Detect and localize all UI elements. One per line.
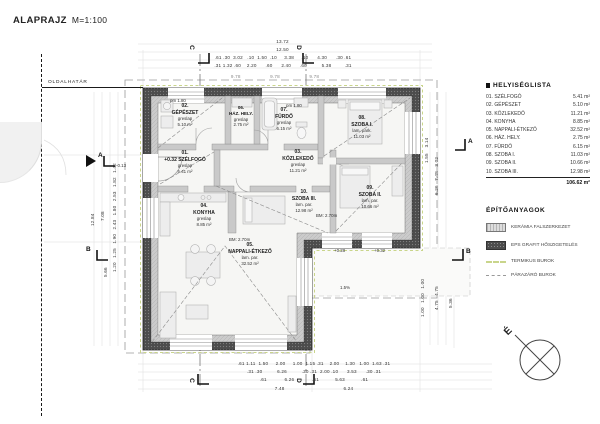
legend-item-vapor: PÁRAZÁRÓ BUROK (486, 273, 578, 278)
room-list-name: 08. SZOBA I. (486, 151, 515, 159)
room-level: +0.32 (164, 157, 177, 163)
room-list-name: 07. FÜRDŐ (486, 143, 512, 151)
room-list-area: 5.10 m² (573, 101, 590, 109)
boundary-label: OLDALHATÁR (48, 80, 88, 85)
room-label-szoba1: 08. SZOBA I. lam. park. 11.03 m² (330, 115, 394, 139)
room-list-area: 2.75 m² (573, 134, 590, 142)
dim-right-col1: 1.55 3.14 (424, 94, 429, 206)
room-list-row: 07. FÜRDŐ 6.15 m² (486, 143, 590, 151)
room-area: 32.52 m² (208, 261, 292, 267)
room-list-area: 5.41 m² (573, 93, 590, 101)
dim-right-col4: 4.75 4.75 (434, 250, 439, 346)
legend-label: TERMIKUS BUROK (511, 259, 554, 264)
dim-right-col2: 6.26 7.48 3.02 (434, 100, 439, 252)
level-mark: -0.13 (116, 163, 126, 168)
dim-top-chain2: .31 1.32 .60 2.20 .60 2.40 .60 5.38 .31 (134, 63, 432, 68)
room-label-nappali: 05. NAPPALI-ÉTKEZŐ lam. par. 32.52 m² (208, 242, 292, 266)
room-list-name: 06. HÁZ. HELY. (486, 134, 521, 142)
room-list-row: 01. SZÉLFOGÓ 5.41 m² (486, 93, 590, 101)
site-contour-line (44, 140, 66, 175)
vapor-line-swatch (486, 275, 506, 276)
room-list-title: HELYISÉGLISTA (486, 82, 590, 89)
sheet-title: ALAPRAJZM=1:100 (13, 10, 107, 28)
room-list-area: 32.52 m² (570, 126, 590, 134)
legend-item-thermal: TERMIKUS BUROK (486, 259, 578, 264)
room-list-row: 04. KONYHA 8.85 m² (486, 118, 590, 126)
room-list-total: 106.62 m² (486, 177, 590, 186)
room-list-row: 02. GÉPÉSZET 5.10 m² (486, 101, 590, 109)
room-label-szoba3: 10. SZOBA III. lam. par. 12.98 m² (280, 189, 328, 213)
room-list-name: 03. KÖZLEKEDŐ (486, 110, 525, 118)
room-list-name: 10. SZOBA III. (486, 168, 518, 176)
room-list-row: 10. SZOBA III. 12.98 m² (486, 168, 590, 176)
dim-top-total: 13.72 (140, 39, 425, 44)
boundary-line (42, 87, 143, 88)
dim-left-total: 12.84 (90, 100, 95, 340)
room-list-area: 11.21 m² (571, 110, 590, 118)
legend-label: KERÁMIA FALSZERKEZET (511, 225, 570, 230)
parapet-note: pm 1.80 (286, 103, 302, 108)
parapet-note: pm 1.80 (170, 98, 186, 103)
room-list-row: 09. SZOBA II. 10.66 m² (486, 159, 590, 167)
section-marker-d-top: D (295, 45, 302, 50)
materials-title: ÉPÍTŐANYAGOK (486, 207, 578, 214)
section-marker-c-bottom: C (188, 378, 195, 383)
room-label-gepeszet: 02. GÉPÉSZET greslap 5.10 m² (156, 103, 214, 127)
room-list-area: 6.15 m² (573, 143, 590, 151)
room-list-row: 05. NAPPALI-ÉTKEZŐ 32.52 m² (486, 126, 590, 134)
room-list-area: 12.98 m² (570, 168, 590, 176)
dim-left-lower: 5.66 (103, 244, 108, 300)
room-label-haz-hely: 06. HÁZ. HELY. greslap 2.75 m² (222, 105, 260, 128)
room-area: 6.15 m² (256, 126, 312, 132)
room-list-area: 10.66 m² (570, 159, 590, 167)
room-list-row: 08. SZOBA I. 11.03 m² (486, 151, 590, 159)
section-marker-c-top: C (188, 45, 195, 50)
room-list-area: 8.85 m² (573, 118, 590, 126)
legend-item-ceramic: KERÁMIA FALSZERKEZET (486, 223, 578, 232)
title-bullet (486, 83, 490, 88)
section-marker-a-left: A (98, 152, 103, 159)
section-marker-b-right: B (466, 248, 471, 255)
room-list: 01. SZÉLFOGÓ 5.41 m² 02. GÉPÉSZET 5.10 m… (486, 93, 590, 186)
dim-right-col3: 1.00 1.00 1.00 (420, 246, 425, 350)
section-marker-d-bottom: D (295, 378, 302, 383)
room-area: 5.10 m² (156, 122, 214, 128)
room-label-szoba2: 09. SZOBA II. lam. par. 10.66 m² (346, 185, 394, 209)
ceiling-height-note: BM: 2.70m (316, 213, 337, 218)
room-label-kozlekedo: 03. KÖZLEKEDŐ greslap 11.21 m² (270, 149, 326, 173)
legend-label: PÁRAZÁRÓ BUROK (511, 273, 556, 278)
room-area: 5.41 m² (154, 169, 216, 175)
property-line (41, 54, 42, 416)
ceiling-height-note: BM: 2.70m (229, 237, 250, 242)
section-marker-b-left: B (86, 246, 91, 253)
room-label-konyha: 04. KONYHA greslap 8.85 m² (178, 203, 230, 227)
materials-panel: ÉPÍTŐANYAGOK KERÁMIA FALSZERKEZET EPS GR… (486, 207, 578, 278)
level-mark: +0.32 (374, 248, 385, 253)
room-area: 11.21 m² (270, 168, 326, 174)
dim-top-marks: 9.78 9.78 9.78 (150, 74, 400, 79)
room-list-row: 03. KÖZLEKEDŐ 11.21 m² (486, 110, 590, 118)
dim-top-chain1: .61 .30 3.02 .10 1.50 .10 3.38 .10 4.30 … (130, 55, 436, 60)
room-name-text: SZÉLFOGÓ (178, 157, 206, 163)
eps-swatch (486, 241, 506, 250)
room-list-name: 01. SZÉLFOGÓ (486, 93, 522, 101)
terrace (312, 248, 470, 296)
dim-right-col5: 5.36 (448, 255, 453, 351)
room-area: 8.85 m² (178, 222, 230, 228)
legend-label: EPS GRAFIT HŐSZIGETELÉS (511, 243, 578, 248)
room-label-szelfogo: 01. +0.32 SZÉLFOGÓ greslap 5.41 m² (154, 150, 216, 174)
floor-plan-sheet: ALAPRAJZM=1:100 OLDALHATÁR 13.72 12.50 .… (0, 0, 600, 424)
room-area: 11.03 m² (330, 134, 394, 140)
level-mark: +0.28 (334, 248, 345, 253)
dim-left-mid: 7.08 (100, 196, 105, 236)
terrace-slope-note: 1.5% (340, 285, 350, 290)
room-label-furdo: 07. FÜRDŐ greslap 6.15 m² (256, 107, 312, 131)
room-list-area: 11.03 m² (571, 151, 590, 159)
room-list-title-text: HELYISÉGLISTA (493, 82, 551, 89)
room-list-panel: HELYISÉGLISTA 01. SZÉLFOGÓ 5.41 m² 02. G… (486, 82, 590, 186)
thermal-line-swatch (486, 261, 506, 263)
legend-item-eps: EPS GRAFIT HŐSZIGETELÉS (486, 241, 578, 250)
room-area: 2.75 m² (222, 122, 260, 128)
room-list-name: 02. GÉPÉSZET (486, 101, 521, 109)
drawing-title: ALAPRAJZ (13, 15, 67, 26)
room-area: 10.66 m² (346, 204, 394, 210)
drawing-scale: M=1:100 (72, 15, 107, 25)
dim-bottom-chain4: 7.48 6.24 (136, 386, 492, 391)
room-list-name: 09. SZOBA II. (486, 159, 517, 167)
dim-bottom-chain2: .31 .30 6.26 .30 .31 2.00 .10 3.53 .30 .… (136, 369, 492, 374)
ceramic-swatch (486, 223, 506, 232)
room-list-row: 06. HÁZ. HELY. 2.75 m² (486, 134, 590, 142)
dim-left-chain: 1.20 1.25 1.90 2.43 1.80 2.53 1.82 1.42 (112, 92, 117, 344)
room-list-name: 04. KONYHA (486, 118, 515, 126)
section-marker-a-right: A (468, 138, 473, 145)
materials-title-text: ÉPÍTŐANYAGOK (486, 207, 545, 214)
room-list-name: 05. NAPPALI-ÉTKEZŐ (486, 126, 537, 134)
dim-bottom-chain1: .61 1.11 1.50 2.00 1.00 1.15 .31 2.00 1.… (136, 361, 492, 366)
